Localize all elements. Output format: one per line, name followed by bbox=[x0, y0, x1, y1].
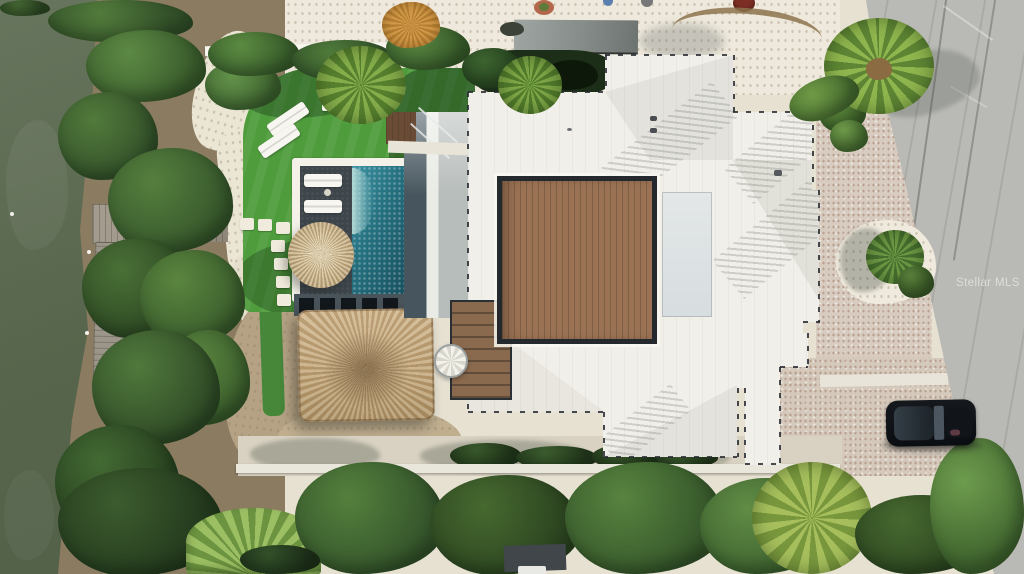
roof-edge-trim bbox=[779, 367, 781, 465]
grill-item bbox=[500, 22, 524, 36]
palapa-umbrella bbox=[288, 222, 354, 288]
tree-canopy bbox=[108, 148, 233, 253]
roof-edge-trim bbox=[733, 55, 735, 112]
concrete-apron bbox=[820, 373, 948, 387]
pool-lounger bbox=[304, 174, 342, 187]
water-highlight bbox=[4, 470, 54, 560]
palapa-thatch-texture bbox=[288, 222, 354, 288]
palm-tree bbox=[498, 56, 562, 114]
shed-item bbox=[518, 566, 546, 574]
bed-plant bbox=[898, 266, 934, 298]
side-table bbox=[324, 189, 331, 196]
fence-plants bbox=[208, 32, 300, 76]
pool-lounger bbox=[304, 200, 342, 213]
turf-strip bbox=[259, 296, 285, 417]
roof-vent bbox=[774, 170, 782, 176]
tree-canopy bbox=[0, 0, 50, 16]
aerial-photo: Stellar MLS bbox=[0, 0, 1024, 574]
roof-edge-trim bbox=[780, 366, 808, 368]
paver-step bbox=[276, 276, 290, 288]
roof-edge-trim bbox=[807, 333, 809, 367]
paver-step bbox=[277, 294, 291, 306]
roof-vent bbox=[650, 116, 657, 121]
roadside-plant bbox=[830, 120, 868, 152]
paver-step bbox=[276, 222, 290, 234]
roof-edge-trim bbox=[605, 55, 607, 92]
tree-canopy bbox=[930, 438, 1024, 574]
bird bbox=[10, 212, 14, 216]
paver-step bbox=[274, 258, 288, 270]
roof-vent bbox=[650, 128, 657, 133]
watermark: Stellar MLS bbox=[956, 277, 1024, 289]
pot-plant bbox=[539, 3, 549, 11]
roof-edge-trim bbox=[468, 411, 603, 413]
paver-step bbox=[271, 240, 285, 252]
bird bbox=[85, 331, 89, 335]
dried-palm-pile bbox=[382, 2, 440, 48]
car-windshield bbox=[934, 406, 945, 440]
entry-ramp bbox=[386, 112, 416, 144]
palm-trunk-center bbox=[866, 58, 892, 80]
car-taillight bbox=[950, 429, 960, 435]
roof-edge-trim bbox=[745, 463, 780, 465]
roof-edge-trim bbox=[603, 456, 737, 458]
roof-edge-trim bbox=[744, 388, 746, 465]
tree-canopy bbox=[240, 545, 320, 574]
courtyard-wood-deck bbox=[497, 176, 657, 344]
roof-edge-trim bbox=[818, 190, 820, 322]
roof-edge-trim bbox=[737, 388, 739, 457]
paver-step bbox=[240, 218, 254, 230]
roof-edge-trim bbox=[803, 321, 820, 323]
skylight-panel bbox=[662, 192, 712, 317]
spiral-staircase bbox=[434, 344, 468, 378]
bird bbox=[87, 250, 91, 254]
roof-edge-trim bbox=[812, 112, 814, 190]
roof-edge-trim bbox=[603, 412, 605, 457]
terracotta-pot bbox=[534, 0, 554, 15]
paver-step bbox=[258, 219, 272, 231]
palm-tree bbox=[752, 462, 872, 574]
tiki-thatch-roof bbox=[297, 308, 435, 422]
car-roof bbox=[894, 406, 935, 441]
parked-car bbox=[886, 399, 977, 447]
bird-on-roof bbox=[567, 128, 572, 131]
